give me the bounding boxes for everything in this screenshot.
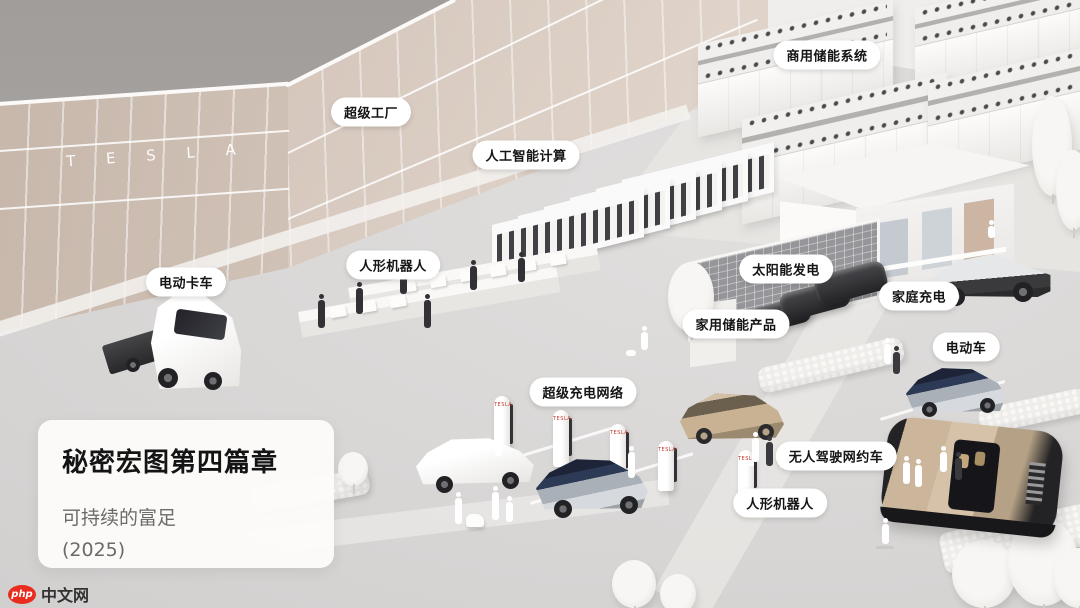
- robovan-seat: [974, 451, 985, 466]
- optimus-robot: [470, 266, 477, 290]
- wheel: [980, 398, 995, 413]
- title-card: 秘密宏图第四篇章 可持续的富足 (2025): [38, 420, 334, 568]
- tree: [660, 574, 696, 608]
- tree: [612, 560, 656, 608]
- supercharger-stall: TESLA: [553, 410, 569, 467]
- label-gigafactory: 超级工厂: [331, 98, 411, 127]
- label-home-energy-storage: 家用储能产品: [682, 310, 789, 339]
- wheel: [554, 500, 572, 518]
- optimus-robot: [318, 300, 325, 328]
- person-figure: [641, 332, 648, 350]
- person-figure: [903, 462, 910, 484]
- tree: [952, 540, 1016, 608]
- dog: [626, 350, 636, 356]
- wheel: [502, 472, 519, 489]
- semi-windshield: [174, 309, 228, 341]
- wheel: [620, 496, 638, 514]
- optimus-robot: [893, 352, 900, 374]
- label-humanoid-robot-street: 人形机器人: [733, 489, 827, 518]
- person-figure: [940, 452, 947, 472]
- person-figure: [455, 498, 462, 524]
- label-electric-vehicle: 电动车: [933, 333, 1000, 362]
- watermark-php-logo: php: [8, 585, 36, 604]
- person-figure: [915, 465, 922, 487]
- wheel: [204, 372, 222, 390]
- label-electric-truck: 电动卡车: [146, 268, 226, 297]
- label-home-charging: 家庭充电: [879, 282, 959, 311]
- person-figure: [752, 438, 759, 462]
- person-figure: [492, 492, 499, 520]
- wheel: [436, 476, 453, 493]
- person-figure: [988, 226, 995, 238]
- supercharger-stall: TESLA: [658, 441, 674, 491]
- optimus-robot: [424, 300, 431, 328]
- label-ai-computing: 人工智能计算: [472, 141, 579, 170]
- label-supercharger-network: 超级充电网络: [529, 378, 636, 407]
- label-commercial-energy-storage: 商用储能系统: [773, 41, 880, 70]
- optimus-robot: [766, 442, 773, 466]
- label-humanoid-robot-factory: 人形机器人: [346, 251, 440, 280]
- master-plan-subtitle: 可持续的富足: [62, 503, 310, 530]
- watermark-site-name: 中文网: [41, 582, 89, 606]
- shopping-bag: [748, 460, 754, 466]
- wheel: [922, 402, 937, 417]
- watermark: php 中文网: [8, 582, 89, 606]
- wheel: [696, 428, 712, 444]
- skateboard: [876, 546, 894, 549]
- person-figure: [495, 432, 502, 456]
- stroller: [466, 514, 484, 527]
- person-figure: [506, 502, 513, 522]
- wheel: [1013, 282, 1033, 302]
- optimus-robot: [955, 458, 962, 480]
- master-plan-illustration: T E S L A: [0, 0, 1080, 608]
- label-solar-power: 太阳能发电: [739, 255, 833, 284]
- master-plan-year: (2025): [62, 539, 310, 561]
- optimus-robot: [518, 258, 525, 282]
- label-robotaxi: 无人驾驶网约车: [776, 442, 897, 471]
- master-plan-title: 秘密宏图第四篇章: [62, 442, 310, 479]
- robovan-grille: [1025, 462, 1045, 506]
- skateboarder: [882, 524, 889, 544]
- wheel: [126, 358, 140, 372]
- person-figure: [628, 452, 635, 478]
- tree: [338, 452, 368, 486]
- optimus-robot: [356, 288, 363, 314]
- wheel: [158, 368, 178, 388]
- person-figure: [884, 344, 891, 364]
